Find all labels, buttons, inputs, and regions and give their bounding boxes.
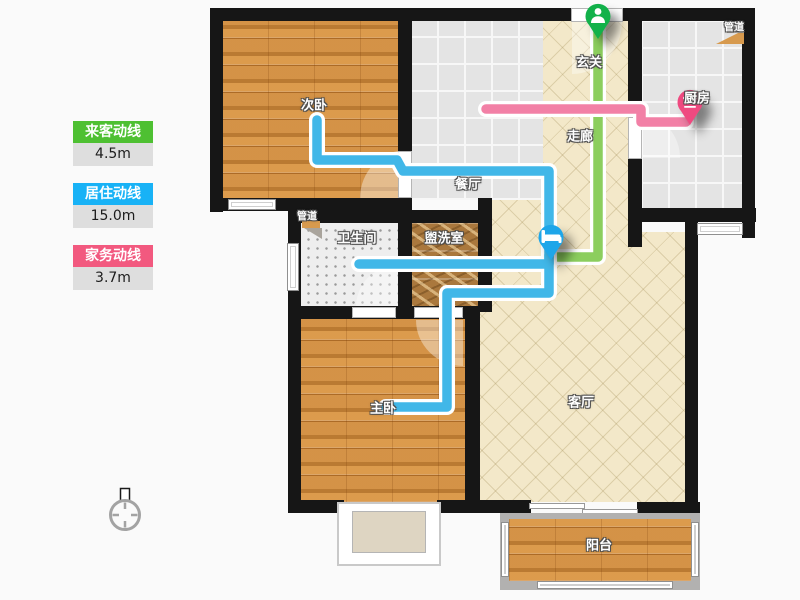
legend-guest-label: 来客动线	[73, 121, 153, 143]
legend-item-guest[interactable]: 来客动线 4.5m	[73, 121, 153, 166]
legend-living-label: 居住动线	[73, 183, 153, 205]
room-label-living-room: 客厅	[568, 392, 594, 411]
room-label-bathroom-duct: 管道	[297, 208, 317, 223]
room-label-kitchen: 厨房	[684, 88, 710, 107]
room-label-kitchen-duct: 管道	[724, 19, 744, 34]
compass-icon	[95, 478, 159, 542]
room-label-balcony: 阳台	[586, 535, 612, 554]
room-label-secondary-bedroom: 次卧	[301, 95, 327, 114]
room-label-bathroom: 卫生间	[337, 228, 376, 247]
floorplan-canvas: 次卧 餐厅 玄关 走廊 厨房 管道 管道 卫生间 盥洗室 主卧 客厅 阳台 来客…	[0, 0, 800, 600]
room-label-dining: 餐厅	[455, 174, 481, 193]
legend-housework-label: 家务动线	[73, 245, 153, 267]
legend-guest-value: 4.5m	[73, 143, 153, 166]
room-label-washroom: 盥洗室	[424, 228, 463, 247]
guest-entrance-pin[interactable]	[585, 4, 610, 39]
living-path-line	[386, 255, 549, 407]
legend-item-living[interactable]: 居住动线 15.0m	[73, 183, 153, 228]
room-label-corridor: 走廊	[567, 126, 593, 145]
room-label-master-bedroom: 主卧	[370, 398, 396, 417]
room-label-entry: 玄关	[576, 52, 602, 71]
legend-housework-value: 3.7m	[73, 267, 153, 290]
legend-living-value: 15.0m	[73, 205, 153, 228]
legend-item-housework[interactable]: 家务动线 3.7m	[73, 245, 153, 290]
